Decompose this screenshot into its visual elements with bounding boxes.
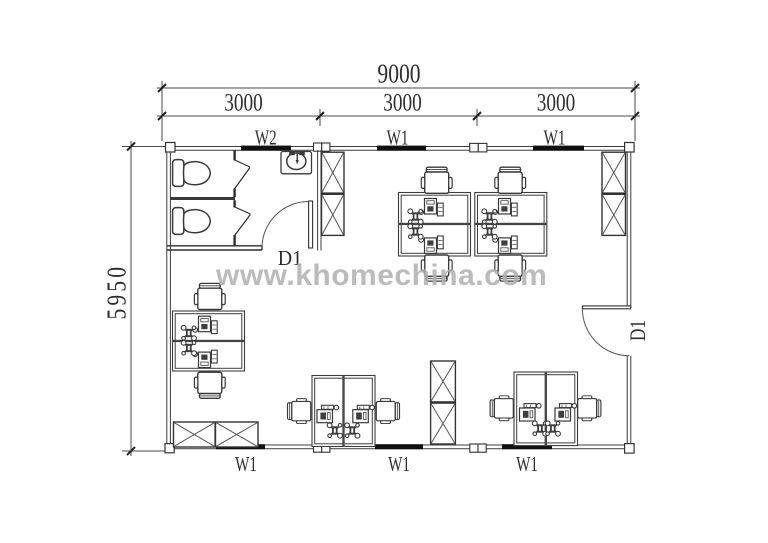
svg-text:W1: W1 bbox=[235, 453, 257, 476]
svg-text:3000: 3000 bbox=[383, 88, 421, 116]
svg-text:W2: W2 bbox=[255, 126, 277, 149]
svg-text:5950: 5950 bbox=[102, 264, 132, 320]
svg-text:9000: 9000 bbox=[377, 59, 420, 89]
svg-text:www.khomechina.com: www.khomechina.com bbox=[215, 259, 547, 292]
svg-text:3000: 3000 bbox=[537, 88, 575, 116]
svg-text:W1: W1 bbox=[387, 126, 409, 149]
svg-text:3000: 3000 bbox=[224, 88, 262, 116]
svg-text:W1: W1 bbox=[544, 126, 566, 149]
svg-text:D1: D1 bbox=[626, 320, 650, 341]
svg-text:W1: W1 bbox=[516, 453, 538, 476]
svg-text:W1: W1 bbox=[388, 453, 410, 476]
